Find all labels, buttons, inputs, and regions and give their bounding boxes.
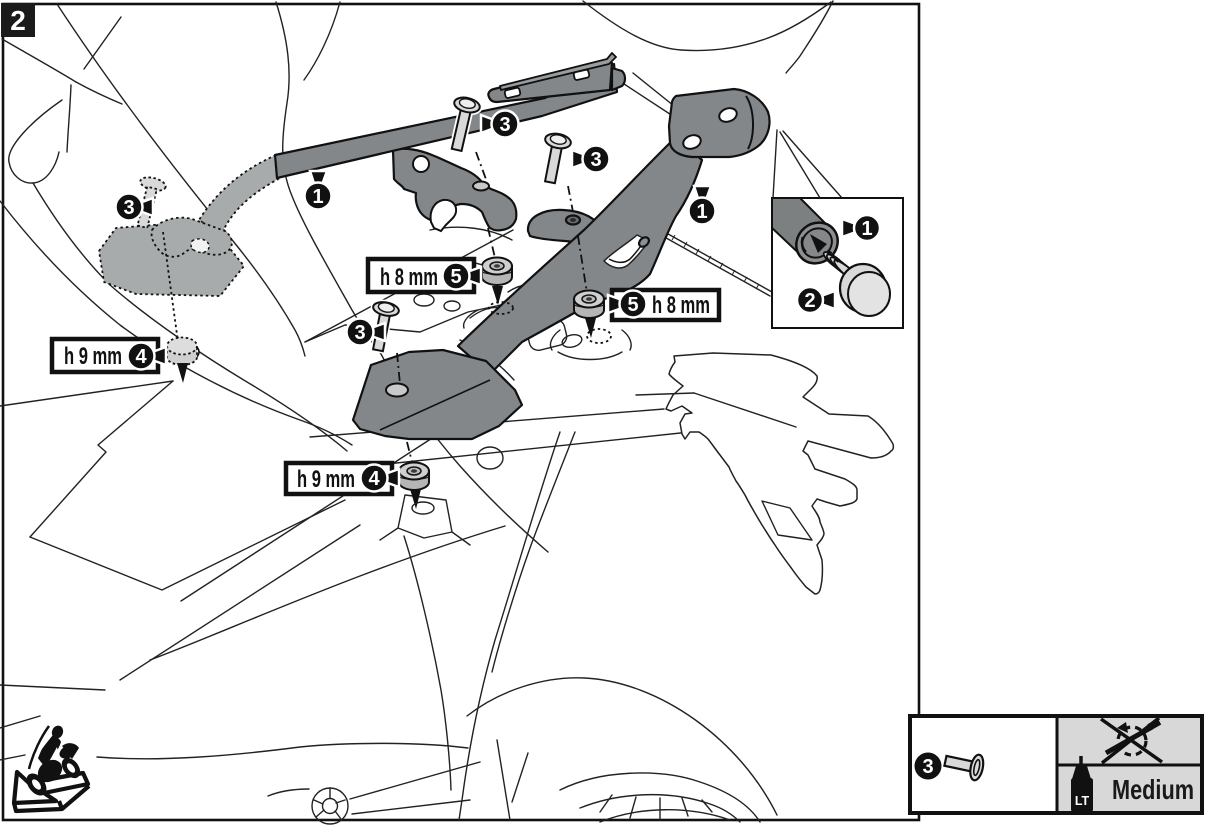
svg-text:3: 3 <box>590 149 601 171</box>
svg-text:h 8 mm: h 8 mm <box>652 292 710 319</box>
svg-text:LT: LT <box>1075 794 1090 808</box>
svg-text:4: 4 <box>368 468 380 490</box>
svg-text:5: 5 <box>627 294 638 316</box>
svg-text:Medium: Medium <box>1112 774 1194 805</box>
svg-text:h 9 mm: h 9 mm <box>297 466 355 493</box>
svg-text:5: 5 <box>450 266 461 288</box>
svg-text:2: 2 <box>804 290 815 312</box>
svg-text:3: 3 <box>354 322 365 344</box>
svg-text:3: 3 <box>123 197 134 219</box>
svg-text:4: 4 <box>135 346 147 368</box>
svg-text:1: 1 <box>312 186 323 208</box>
svg-text:h 8 mm: h 8 mm <box>380 264 438 291</box>
svg-text:h 9 mm: h 9 mm <box>64 343 122 370</box>
svg-text:3: 3 <box>922 756 933 778</box>
svg-text:1: 1 <box>861 218 872 240</box>
svg-text:1: 1 <box>696 201 707 223</box>
svg-text:2: 2 <box>10 5 26 36</box>
svg-text:3: 3 <box>499 114 510 136</box>
